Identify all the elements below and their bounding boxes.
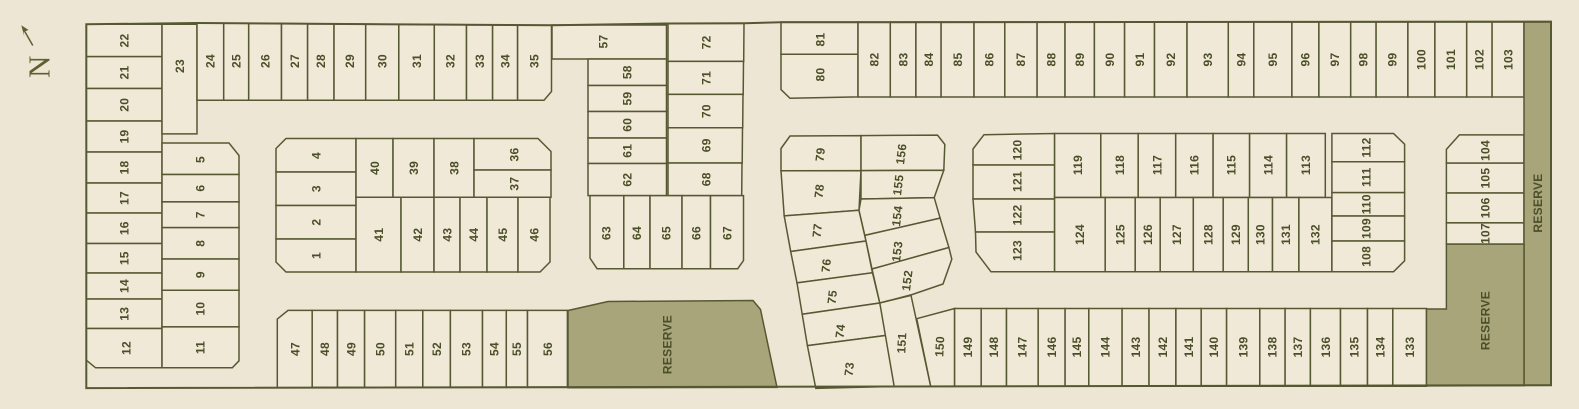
svg-text:142: 142 (1156, 337, 1170, 358)
svg-text:68: 68 (699, 172, 713, 186)
svg-text:156: 156 (893, 143, 909, 165)
svg-text:41: 41 (372, 228, 386, 242)
svg-text:5: 5 (193, 156, 207, 163)
svg-text:N: N (22, 56, 57, 78)
svg-text:103: 103 (1501, 49, 1515, 70)
svg-text:61: 61 (620, 144, 634, 158)
svg-text:109: 109 (1359, 218, 1373, 239)
svg-text:19: 19 (117, 130, 131, 144)
svg-text:59: 59 (620, 92, 634, 106)
svg-text:66: 66 (690, 226, 704, 240)
svg-text:20: 20 (117, 98, 131, 112)
svg-text:150: 150 (932, 336, 947, 358)
svg-text:114: 114 (1261, 155, 1275, 175)
svg-text:143: 143 (1129, 337, 1143, 358)
svg-text:141: 141 (1182, 337, 1196, 358)
svg-text:147: 147 (1016, 337, 1030, 358)
svg-text:122: 122 (1010, 205, 1024, 226)
svg-text:58: 58 (620, 65, 634, 79)
svg-text:35: 35 (527, 54, 541, 68)
svg-text:18: 18 (117, 161, 131, 175)
svg-text:51: 51 (403, 342, 417, 356)
svg-text:29: 29 (343, 54, 357, 68)
svg-text:105: 105 (1478, 168, 1492, 189)
svg-text:123: 123 (1010, 240, 1024, 261)
svg-text:119: 119 (1071, 155, 1085, 175)
svg-text:85: 85 (951, 53, 965, 67)
svg-text:118: 118 (1113, 155, 1127, 175)
svg-text:7: 7 (193, 211, 207, 218)
svg-text:121: 121 (1010, 171, 1024, 192)
svg-text:115: 115 (1225, 155, 1239, 175)
svg-text:132: 132 (1309, 224, 1323, 245)
svg-text:152: 152 (899, 269, 915, 291)
svg-text:67: 67 (720, 226, 734, 240)
svg-text:129: 129 (1229, 224, 1243, 245)
svg-text:154: 154 (889, 205, 905, 227)
svg-text:133: 133 (1403, 337, 1417, 358)
svg-text:31: 31 (410, 54, 424, 68)
svg-text:1: 1 (309, 252, 323, 259)
svg-text:111: 111 (1359, 167, 1373, 187)
svg-text:84: 84 (922, 53, 936, 67)
svg-text:80: 80 (813, 68, 827, 82)
svg-text:89: 89 (1073, 53, 1087, 67)
svg-text:99: 99 (1385, 53, 1399, 67)
svg-text:50: 50 (373, 342, 387, 356)
svg-text:13: 13 (117, 307, 131, 321)
svg-text:37: 37 (507, 177, 521, 191)
svg-text:117: 117 (1150, 155, 1164, 175)
svg-text:15: 15 (117, 251, 131, 265)
svg-text:149: 149 (961, 337, 975, 358)
svg-text:151: 151 (894, 332, 909, 354)
svg-text:91: 91 (1133, 53, 1147, 67)
svg-text:2: 2 (309, 219, 323, 226)
svg-text:126: 126 (1141, 224, 1155, 245)
svg-text:102: 102 (1473, 49, 1487, 70)
svg-text:148: 148 (987, 337, 1001, 358)
svg-text:116: 116 (1188, 155, 1202, 175)
svg-text:42: 42 (411, 228, 425, 242)
svg-text:95: 95 (1266, 53, 1280, 67)
svg-text:94: 94 (1234, 53, 1248, 67)
svg-text:139: 139 (1237, 337, 1251, 358)
svg-text:75: 75 (825, 289, 841, 305)
svg-text:30: 30 (376, 54, 390, 68)
svg-text:64: 64 (630, 226, 644, 240)
svg-text:70: 70 (699, 104, 713, 118)
svg-text:6: 6 (193, 185, 207, 192)
svg-text:40: 40 (368, 161, 382, 175)
svg-text:26: 26 (258, 54, 272, 68)
svg-text:22: 22 (117, 34, 131, 48)
svg-text:153: 153 (889, 240, 905, 262)
svg-text:RESERVE: RESERVE (660, 315, 674, 374)
svg-text:146: 146 (1045, 337, 1059, 358)
svg-text:17: 17 (117, 191, 131, 205)
svg-text:81: 81 (813, 33, 827, 47)
svg-text:24: 24 (204, 54, 218, 68)
svg-text:134: 134 (1374, 337, 1388, 358)
svg-text:124: 124 (1073, 224, 1087, 245)
svg-text:54: 54 (488, 342, 502, 356)
svg-text:82: 82 (867, 53, 881, 67)
svg-text:56: 56 (541, 342, 555, 356)
svg-text:97: 97 (1328, 53, 1342, 67)
svg-text:32: 32 (444, 54, 458, 68)
svg-text:87: 87 (1014, 53, 1028, 67)
svg-text:57: 57 (596, 35, 610, 49)
svg-text:86: 86 (983, 53, 997, 67)
svg-text:137: 137 (1291, 337, 1305, 358)
svg-text:78: 78 (812, 183, 828, 199)
svg-text:93: 93 (1201, 53, 1215, 67)
svg-text:140: 140 (1207, 337, 1221, 358)
svg-text:43: 43 (440, 228, 454, 242)
svg-text:130: 130 (1254, 224, 1268, 245)
svg-text:88: 88 (1044, 53, 1058, 67)
svg-text:62: 62 (620, 173, 634, 187)
svg-text:RESERVE: RESERVE (1531, 173, 1545, 232)
svg-text:73: 73 (842, 361, 858, 377)
svg-text:96: 96 (1299, 53, 1313, 67)
svg-text:101: 101 (1444, 49, 1458, 70)
svg-text:55: 55 (510, 342, 524, 356)
svg-text:113: 113 (1299, 155, 1313, 175)
svg-text:100: 100 (1415, 49, 1429, 70)
svg-text:120: 120 (1010, 140, 1024, 161)
svg-text:23: 23 (173, 59, 187, 73)
svg-text:125: 125 (1114, 224, 1128, 245)
svg-text:16: 16 (117, 221, 131, 235)
svg-text:3: 3 (309, 185, 323, 192)
svg-text:104: 104 (1478, 140, 1492, 161)
svg-text:39: 39 (407, 161, 421, 175)
svg-text:145: 145 (1070, 337, 1084, 358)
svg-text:10: 10 (193, 302, 207, 316)
svg-text:47: 47 (288, 342, 302, 356)
svg-text:79: 79 (813, 147, 829, 163)
svg-text:11: 11 (193, 341, 207, 354)
svg-text:34: 34 (498, 54, 512, 68)
svg-text:48: 48 (318, 342, 332, 356)
svg-text:8: 8 (193, 240, 207, 247)
svg-text:92: 92 (1164, 53, 1178, 67)
svg-text:98: 98 (1357, 53, 1371, 67)
svg-text:65: 65 (659, 226, 673, 240)
svg-text:12: 12 (119, 341, 133, 355)
svg-text:4: 4 (309, 152, 323, 159)
svg-text:90: 90 (1103, 53, 1117, 67)
svg-text:112: 112 (1359, 137, 1373, 157)
svg-text:28: 28 (314, 54, 328, 68)
svg-text:63: 63 (599, 226, 613, 240)
svg-text:52: 52 (430, 342, 444, 356)
svg-text:144: 144 (1099, 337, 1113, 358)
svg-text:72: 72 (699, 35, 713, 49)
svg-text:45: 45 (496, 228, 510, 242)
svg-text:36: 36 (507, 148, 521, 162)
svg-text:46: 46 (527, 228, 541, 242)
svg-text:25: 25 (230, 54, 244, 68)
svg-text:106: 106 (1478, 197, 1492, 218)
svg-text:9: 9 (193, 271, 207, 278)
svg-text:27: 27 (288, 54, 302, 68)
svg-text:71: 71 (699, 71, 713, 85)
svg-text:110: 110 (1359, 194, 1373, 214)
svg-text:RESERVE: RESERVE (1478, 291, 1492, 350)
svg-text:108: 108 (1359, 246, 1373, 267)
svg-text:74: 74 (833, 323, 849, 339)
svg-text:128: 128 (1202, 224, 1216, 245)
svg-text:38: 38 (447, 161, 461, 175)
svg-text:107: 107 (1478, 223, 1492, 244)
svg-text:21: 21 (117, 66, 131, 80)
svg-text:135: 135 (1347, 337, 1361, 358)
svg-text:131: 131 (1279, 224, 1293, 245)
svg-text:127: 127 (1170, 224, 1184, 245)
svg-text:14: 14 (117, 279, 131, 293)
svg-text:60: 60 (620, 118, 634, 132)
svg-text:77: 77 (810, 223, 826, 239)
svg-text:138: 138 (1266, 337, 1280, 358)
svg-text:49: 49 (344, 342, 358, 356)
svg-text:33: 33 (473, 54, 487, 68)
svg-text:53: 53 (460, 342, 474, 356)
svg-text:83: 83 (896, 53, 910, 67)
svg-text:76: 76 (819, 258, 835, 274)
svg-text:44: 44 (467, 228, 481, 242)
svg-text:136: 136 (1319, 337, 1333, 358)
svg-text:69: 69 (699, 138, 713, 152)
svg-text:155: 155 (890, 174, 906, 196)
